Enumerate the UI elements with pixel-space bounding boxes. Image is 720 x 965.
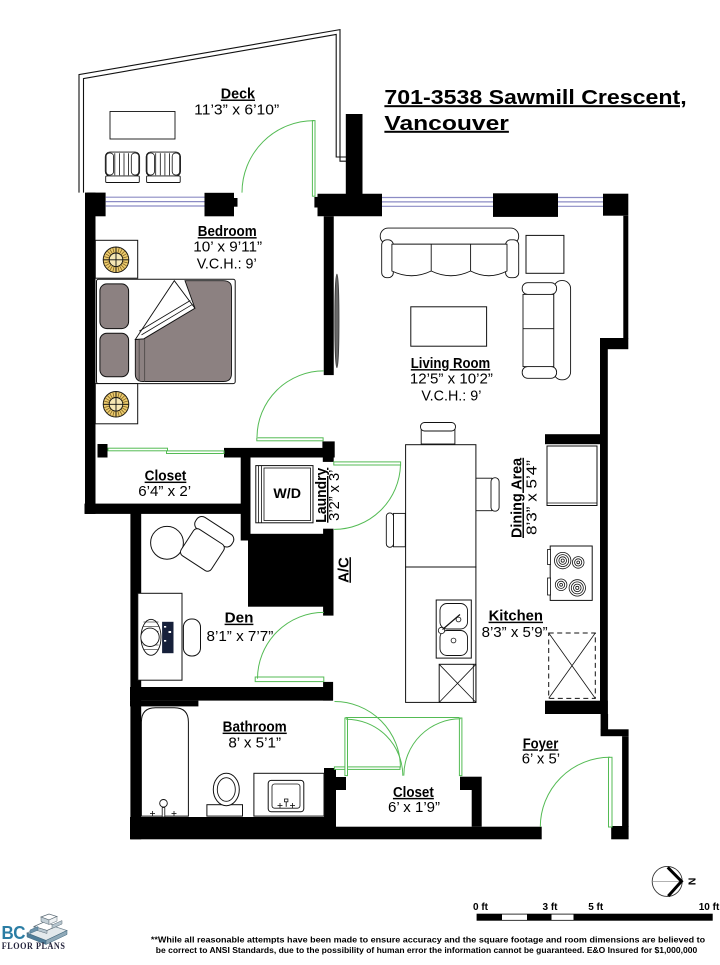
svg-text:N: N — [686, 878, 698, 886]
svg-text:Living Room: Living Room — [411, 356, 490, 372]
svg-text:701-3538 Sawmill Crescent,: 701-3538 Sawmill Crescent, — [384, 87, 686, 109]
svg-text:8’3” x 5’4”: 8’3” x 5’4” — [524, 460, 540, 535]
svg-text:Closet: Closet — [393, 785, 434, 801]
svg-text:6’ x 5’: 6’ x 5’ — [522, 751, 560, 767]
svg-text:Deck: Deck — [221, 87, 256, 103]
svg-text:Closet: Closet — [145, 469, 187, 485]
svg-text:**While all reasonable attempt: **While all reasonable attempts have bee… — [151, 936, 705, 945]
svg-text:FLOOR PLANS: FLOOR PLANS — [2, 941, 66, 951]
svg-text:Kitchen: Kitchen — [489, 609, 543, 625]
svg-text:8’3” x 5’9”: 8’3” x 5’9” — [482, 625, 548, 641]
svg-text:A/C: A/C — [337, 557, 353, 583]
svg-text:V.C.H.: 9’: V.C.H.: 9’ — [197, 256, 257, 272]
svg-text:be correct to ANSI Standards,: be correct to ANSI Standards, due to the… — [156, 946, 698, 955]
svg-text:8’1” x 7’7”: 8’1” x 7’7” — [207, 629, 274, 645]
svg-text:Dining Area: Dining Area — [510, 457, 526, 538]
svg-text:12’5” x 10’2”: 12’5” x 10’2” — [410, 371, 493, 387]
svg-text:10’ x 9’11”: 10’ x 9’11” — [193, 240, 262, 256]
svg-text:3’2” x 3’: 3’2” x 3’ — [327, 470, 343, 521]
svg-text:6’4” x 2’: 6’4” x 2’ — [138, 484, 191, 500]
svg-text:Bathroom: Bathroom — [223, 720, 287, 736]
svg-text:3 ft: 3 ft — [543, 902, 559, 913]
svg-text:W/D: W/D — [273, 486, 301, 501]
svg-text:Foyer: Foyer — [523, 736, 559, 752]
svg-text:8’ x 5’1”: 8’ x 5’1” — [228, 736, 281, 752]
svg-text:11’3” x 6’10”: 11’3” x 6’10” — [194, 102, 279, 118]
svg-text:10 ft: 10 ft — [699, 902, 720, 913]
svg-text:5 ft: 5 ft — [588, 902, 604, 913]
svg-text:V.C.H.: 9’: V.C.H.: 9’ — [421, 389, 481, 405]
svg-text:Den: Den — [225, 611, 254, 627]
svg-text:Vancouver: Vancouver — [384, 113, 509, 135]
svg-text:0 ft: 0 ft — [473, 902, 489, 913]
svg-text:BC: BC — [2, 923, 26, 943]
svg-text:6’ x 1’9”: 6’ x 1’9” — [388, 800, 440, 816]
svg-text:Bedroom: Bedroom — [198, 224, 257, 240]
